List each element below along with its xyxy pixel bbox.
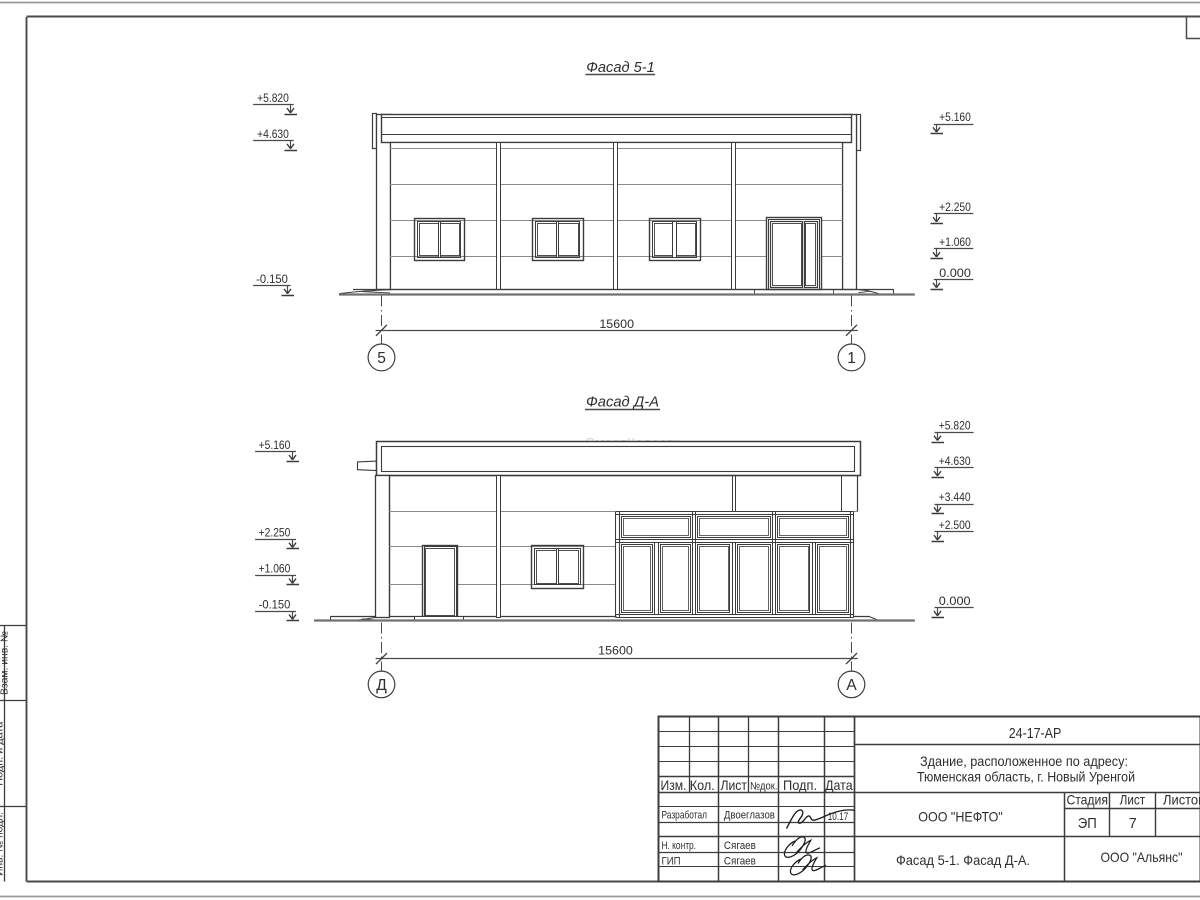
svg-text:Взам. инв. №: Взам. инв. №	[0, 631, 11, 695]
svg-text:+2.500: +2.500	[939, 519, 971, 532]
svg-text:+5.160: +5.160	[939, 111, 971, 124]
svg-text:+2.250: +2.250	[259, 527, 291, 540]
svg-text:Лист: Лист	[1120, 792, 1146, 808]
svg-text:Двоеглазов: Двоеглазов	[724, 809, 775, 821]
svg-text:+3.440: +3.440	[939, 491, 971, 504]
svg-text:Стадия: Стадия	[1066, 792, 1108, 808]
svg-text:Д: Д	[376, 677, 387, 694]
svg-text:Здание, расположенное по адрес: Здание, расположенное по адресу:	[920, 753, 1128, 769]
svg-text:5: 5	[377, 350, 386, 367]
svg-text:Дата: Дата	[825, 777, 853, 793]
svg-text:+1.060: +1.060	[259, 562, 291, 575]
svg-text:Подп. и дата: Подп. и дата	[0, 721, 5, 785]
svg-text:Сягаев: Сягаев	[724, 840, 756, 852]
svg-text:Кол.: Кол.	[690, 777, 715, 793]
svg-text:15600: 15600	[599, 317, 634, 331]
svg-text:ООО "Альянс": ООО "Альянс"	[1101, 849, 1183, 865]
svg-text:1: 1	[847, 350, 856, 367]
svg-text:Лист: Лист	[720, 777, 747, 793]
svg-text:№док.: №док.	[750, 780, 778, 792]
svg-text:Фасад 5-1. Фасад Д-А.: Фасад 5-1. Фасад Д-А.	[896, 852, 1030, 868]
svg-text:+4.630: +4.630	[939, 455, 971, 468]
svg-text:24-17-АР: 24-17-АР	[1009, 726, 1062, 742]
svg-text:0.000: 0.000	[939, 267, 971, 280]
svg-text:Разработал: Разработал	[662, 809, 708, 821]
svg-text:+5.820: +5.820	[257, 92, 289, 105]
svg-text:+1.060: +1.060	[939, 236, 971, 249]
svg-text:-0.150: -0.150	[256, 273, 288, 286]
svg-text:Фасад Д-А: Фасад Д-А	[586, 395, 659, 411]
svg-text:А: А	[846, 677, 857, 694]
svg-text:Изм.: Изм.	[661, 777, 687, 793]
svg-text:7: 7	[1129, 816, 1137, 832]
svg-text:+5.820: +5.820	[939, 420, 971, 433]
svg-text:Н. контр.: Н. контр.	[662, 840, 697, 852]
svg-text:ЭП: ЭП	[1078, 816, 1097, 832]
svg-text:+5.160: +5.160	[259, 439, 291, 452]
svg-text:Тюменская область, г. Новый Ур: Тюменская область, г. Новый Уренгой	[917, 769, 1135, 785]
svg-text:10.17: 10.17	[828, 811, 849, 823]
svg-text:15600: 15600	[598, 643, 633, 657]
svg-text:ГИП: ГИП	[662, 856, 681, 868]
svg-text:Подп.: Подп.	[783, 777, 817, 793]
svg-text:+4.630: +4.630	[257, 128, 289, 141]
svg-text:ООО "НЕФТО": ООО "НЕФТО"	[918, 809, 1003, 825]
svg-text:Инв. № подл.: Инв. № подл.	[0, 812, 5, 876]
svg-text:0.000: 0.000	[939, 595, 971, 608]
svg-text:Фасад 5-1: Фасад 5-1	[586, 60, 655, 76]
svg-text:-0.150: -0.150	[259, 598, 291, 611]
svg-text:+2.250: +2.250	[939, 201, 971, 214]
svg-text:Листов: Листов	[1163, 792, 1200, 808]
svg-text:Сягаев: Сягаев	[724, 856, 756, 868]
